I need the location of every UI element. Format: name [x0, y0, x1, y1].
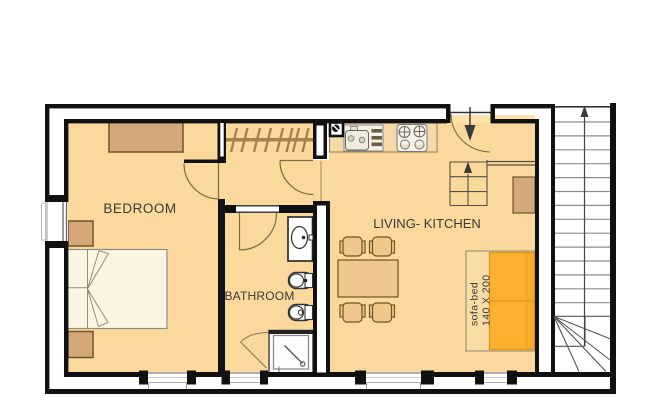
svg-text:140 X 200: 140 X 200 — [481, 275, 493, 326]
svg-text:sofa-bed: sofa-bed — [469, 282, 481, 326]
svg-text:BEDROOM: BEDROOM — [103, 201, 176, 216]
svg-text:BATHROOM: BATHROOM — [224, 289, 294, 303]
svg-text:LIVING- KITCHEN: LIVING- KITCHEN — [373, 216, 481, 231]
